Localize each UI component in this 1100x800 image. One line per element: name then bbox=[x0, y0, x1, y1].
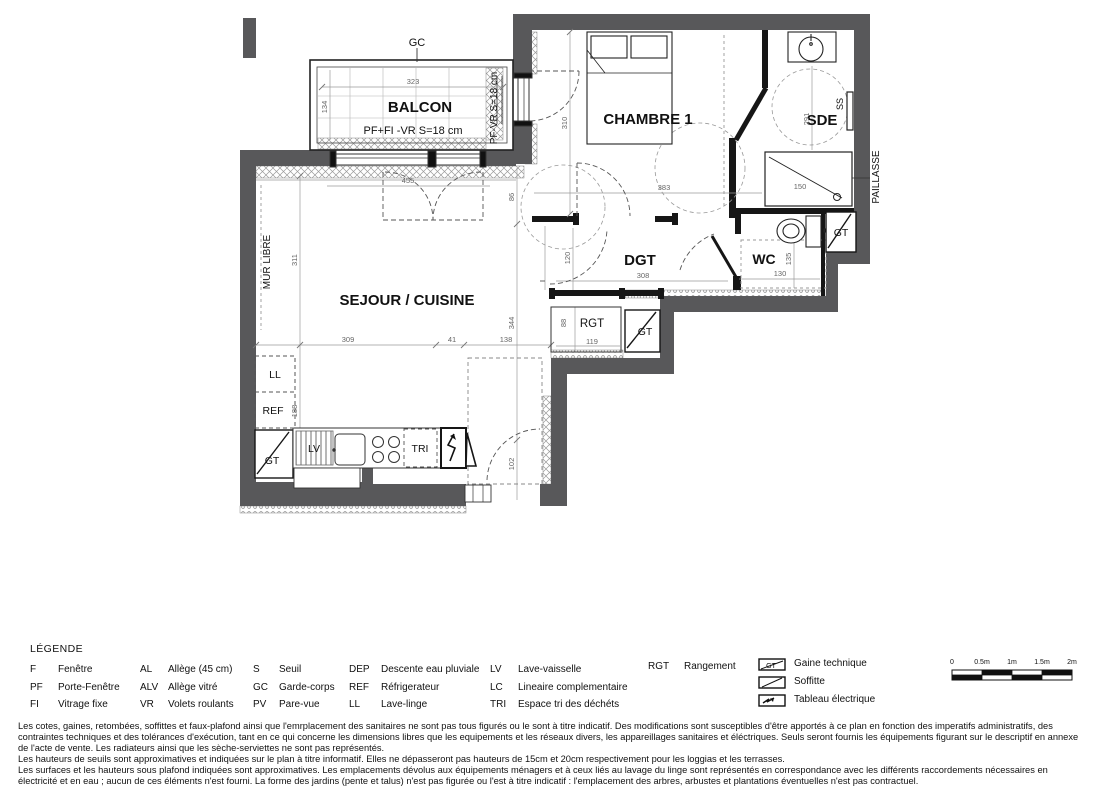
label-balcon: BALCON bbox=[388, 99, 452, 116]
scale-bar-graphic bbox=[948, 669, 1076, 681]
label-sejour: SEJOUR / CUISINE bbox=[339, 292, 474, 309]
dim-douche-w: 150 bbox=[794, 182, 807, 191]
label-gt-2: GT bbox=[638, 326, 653, 338]
legend-abbr: AL bbox=[140, 661, 168, 679]
legend-symbol-label: Soffitte bbox=[794, 676, 825, 687]
legend-label: Vitrage fixe bbox=[58, 696, 108, 714]
label-ll: LL bbox=[269, 369, 281, 381]
dim-dgt-h: 120 bbox=[563, 252, 572, 265]
legend-abbr: GC bbox=[253, 679, 279, 697]
legend-symbol-label: Gaine technique bbox=[794, 658, 867, 669]
scale-tick-labels: 0 0.5m 1m 1.5m 2m bbox=[948, 659, 1076, 669]
legend-abbr: LC bbox=[490, 679, 518, 697]
legend-label: Lave-vaisselle bbox=[518, 661, 581, 679]
dim-sde-h: 291 bbox=[802, 113, 811, 126]
label-gc: GC bbox=[409, 37, 426, 49]
legend-abbr: LV bbox=[490, 661, 518, 679]
label-ref: REF bbox=[263, 405, 284, 417]
scale-tick: 0 bbox=[950, 659, 954, 666]
legend-title: LÉGENDE bbox=[30, 643, 83, 655]
label-sde: SDE bbox=[807, 112, 838, 129]
legend-label: Porte-Fenêtre bbox=[58, 679, 120, 697]
legend-column-equipements: DEPDescente eau pluviale REFRéfrigerateu… bbox=[349, 661, 479, 714]
scale-tick: 1.5m bbox=[1034, 659, 1050, 666]
tableau-electrique-icon bbox=[758, 694, 786, 707]
label-rgt: RGT bbox=[580, 318, 604, 330]
legend-abbr: DEP bbox=[349, 661, 381, 679]
dim-344: 344 bbox=[507, 317, 516, 330]
dim-86: 86 bbox=[507, 193, 516, 201]
label-tri: TRI bbox=[412, 443, 429, 455]
dim-balcon-w: 323 bbox=[407, 77, 420, 86]
legend-column-seuil: SSeuil GCGarde-corps PVPare-vue bbox=[253, 661, 335, 714]
legend-abbr: TRI bbox=[490, 696, 518, 714]
legend-abbr: S bbox=[253, 661, 279, 679]
legend-label: Allège (45 cm) bbox=[168, 661, 232, 679]
legend-abbr: LL bbox=[349, 696, 381, 714]
gaine-technique-icon: GT bbox=[758, 658, 786, 671]
label-dgt: DGT bbox=[624, 252, 656, 269]
legend-label: Allège vitré bbox=[168, 679, 217, 697]
legend-column-openings: FFenêtre PFPorte-Fenêtre FIVitrage fixe bbox=[30, 661, 120, 714]
washbasin bbox=[788, 32, 836, 62]
entry-door-leaf bbox=[466, 433, 476, 466]
legend-column-cuisine: LVLave-vaisselle LCLineaire complementai… bbox=[490, 661, 628, 714]
legend-abbr: PF bbox=[30, 679, 58, 697]
dim-rgt-w: 119 bbox=[586, 337, 598, 346]
legend-abbr: VR bbox=[140, 696, 168, 714]
scale-tick: 1m bbox=[1007, 659, 1017, 666]
legend-label: Rangement bbox=[684, 658, 736, 676]
chamfer-wall bbox=[736, 88, 766, 140]
legend-abbr: RGT bbox=[648, 658, 684, 676]
legend-label: Pare-vue bbox=[279, 696, 320, 714]
dim-cuisine-h: 188 bbox=[290, 405, 299, 418]
label-wc: WC bbox=[752, 251, 775, 267]
scale-tick: 2m bbox=[1067, 659, 1077, 666]
label-pf-vr: PF-VR S=18 cm bbox=[489, 72, 500, 145]
legend-label: Réfrigerateur bbox=[381, 679, 439, 697]
toilet bbox=[777, 216, 827, 247]
electrical-panel bbox=[441, 428, 466, 468]
dim-dgt-w: 308 bbox=[637, 271, 650, 280]
dim-wc-w: 130 bbox=[774, 269, 787, 278]
shower bbox=[765, 152, 852, 206]
footnote-paragraph-2: Les hauteurs de seuils sont approximativ… bbox=[18, 754, 1084, 765]
legend-label: Lineaire complementaire bbox=[518, 679, 628, 697]
dim-chambre-w: 383 bbox=[658, 183, 671, 192]
legend-label: Espace tri des déchéts bbox=[518, 696, 619, 714]
dim-chambre-h: 310 bbox=[560, 117, 569, 130]
dim-entree-h: 102 bbox=[507, 458, 516, 471]
legend-symbols: GT Gaine technique Soffitte Tableau élec… bbox=[758, 655, 875, 709]
legend-label: Volets roulants bbox=[168, 696, 234, 714]
label-paillasse: PAILLASSE bbox=[871, 150, 882, 204]
footnote-paragraph-3: Les surfaces et les hauteurs sous plafon… bbox=[18, 765, 1084, 787]
legend-abbr: FI bbox=[30, 696, 58, 714]
legend-label: Descente eau pluviale bbox=[381, 661, 479, 679]
legend-column-allege: ALAllège (45 cm) ALVAllège vitré VRVolet… bbox=[140, 661, 234, 714]
legend-label: Lave-linge bbox=[381, 696, 427, 714]
legend-label: Garde-corps bbox=[279, 679, 335, 697]
soffitte-icon bbox=[758, 676, 786, 689]
appliance-zones bbox=[255, 356, 295, 428]
entry-threshold bbox=[465, 485, 491, 502]
label-balcon-note: PF+FI -VR S=18 cm bbox=[363, 125, 462, 137]
label-gt-1: GT bbox=[834, 227, 849, 239]
legend: LÉGENDE FFenêtre PFPorte-Fenêtre FIVitra… bbox=[0, 641, 1100, 716]
annotation-labels: GC PF+FI -VR S=18 cm PF-VR S=18 cm SS PA… bbox=[262, 37, 882, 467]
dim-balcon-d: 134 bbox=[320, 101, 329, 114]
scale-tick: 0.5m bbox=[974, 659, 990, 666]
legend-abbr: PV bbox=[253, 696, 279, 714]
dimension-ticks bbox=[253, 29, 573, 483]
legend-label: Fenêtre bbox=[58, 661, 92, 679]
dim-wc-h: 135 bbox=[784, 253, 793, 266]
legend-label: Seuil bbox=[279, 661, 301, 679]
dim-sejour-h: 311 bbox=[290, 254, 299, 266]
dim-k1: 309 bbox=[342, 335, 355, 344]
dim-pf-w: 455 bbox=[402, 176, 415, 185]
legend-abbr: F bbox=[30, 661, 58, 679]
dim-k2: 41 bbox=[448, 335, 456, 344]
footnotes: Les cotes, gaines, retombées, soffittes … bbox=[18, 721, 1084, 787]
label-gt-3: GT bbox=[265, 455, 280, 467]
label-lv: LV bbox=[308, 443, 320, 455]
label-chambre: CHAMBRE 1 bbox=[603, 111, 692, 128]
wc-door-leaf bbox=[712, 236, 736, 277]
legend-column-rangement: RGTRangement bbox=[648, 658, 736, 676]
scale-bar: 0 0.5m 1m 1.5m 2m bbox=[948, 659, 1076, 684]
floor-plan-drawing: BALCON CHAMBRE 1 SDE DGT WC SEJOUR / CUI… bbox=[0, 0, 1100, 640]
legend-abbr: ALV bbox=[140, 679, 168, 697]
label-ss: SS bbox=[835, 98, 845, 110]
label-mur-libre: MUR LIBRE bbox=[262, 234, 273, 289]
floor-plan-sheet: BALCON CHAMBRE 1 SDE DGT WC SEJOUR / CUI… bbox=[0, 0, 1100, 800]
footnote-paragraph-1: Les cotes, gaines, retombées, soffittes … bbox=[18, 721, 1084, 754]
towel-radiator bbox=[847, 92, 853, 130]
dim-rgt-h: 88 bbox=[559, 319, 568, 327]
dim-k3: 138 bbox=[500, 335, 513, 344]
legend-abbr: REF bbox=[349, 679, 381, 697]
legend-symbol-label: Tableau électrique bbox=[794, 694, 875, 705]
